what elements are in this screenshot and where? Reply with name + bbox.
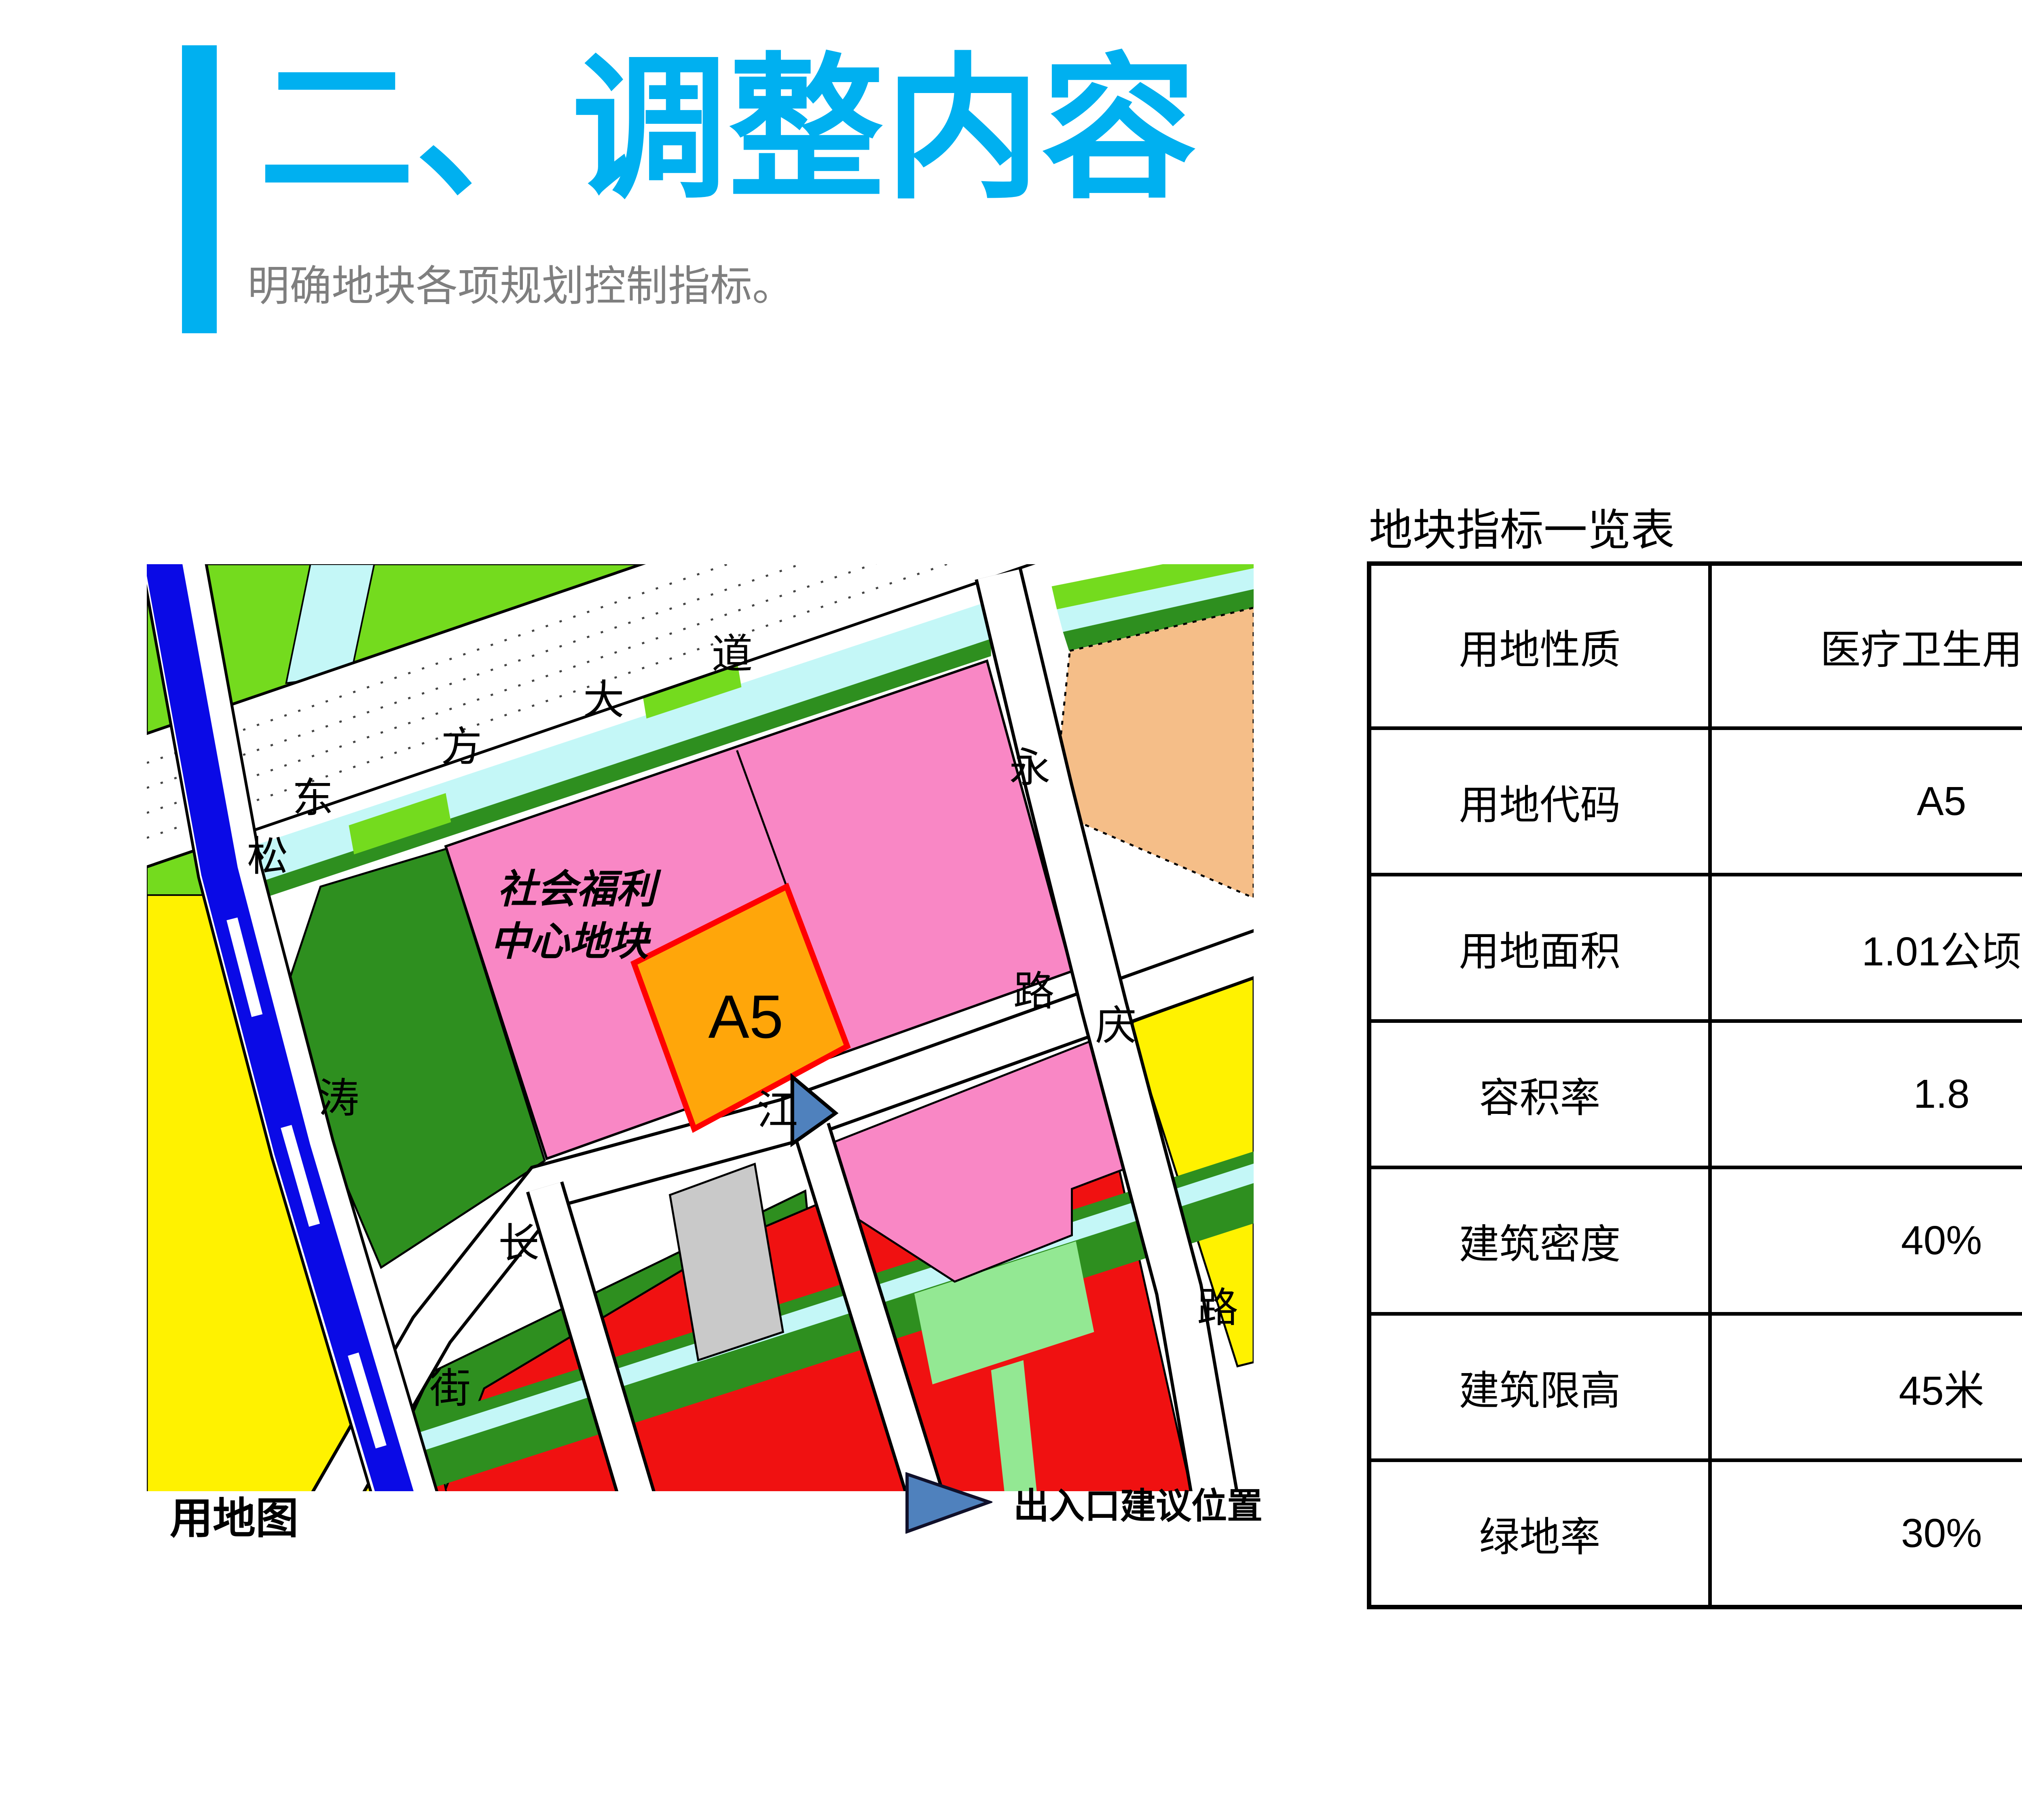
road-label-changjiang-3: 路	[1013, 968, 1055, 1014]
row-value: 30%	[1710, 1460, 2022, 1607]
welfare-parcel-label-line2: 中心地块	[490, 919, 651, 964]
row-label: 用地性质	[1369, 564, 1710, 728]
a5-parcel-label: A5	[708, 983, 783, 1051]
road-label-songtao-1: 松	[247, 833, 288, 879]
row-value: 1.8	[1710, 1021, 2022, 1168]
title-accent-bar	[182, 45, 217, 333]
row-value: 40%	[1710, 1168, 2022, 1314]
table-row: 绿地率 30%	[1369, 1460, 2022, 1607]
row-label: 绿地率	[1369, 1460, 1710, 1607]
row-value: A5	[1710, 728, 2022, 875]
road-label-songtao-3: 街	[429, 1365, 471, 1412]
road-label-changjiang-2: 江	[757, 1087, 798, 1133]
entrance-legend-icon	[905, 1472, 992, 1534]
table-row: 建筑限高 45米	[1369, 1314, 2022, 1460]
page-subtitle: 明确地块各项规划控制指标。	[247, 252, 794, 313]
table-row: 用地性质 医疗卫生用地	[1369, 564, 2022, 728]
table-row: 用地代码 A5	[1369, 728, 2022, 875]
road-label-dongfang-1: 东	[292, 775, 334, 821]
road-label-yongqing-3: 路	[1197, 1285, 1238, 1331]
welfare-parcel-label-line1: 社会福利	[497, 867, 662, 911]
road-label-yongqing-2: 庆	[1095, 1003, 1136, 1049]
page-title: 二、调整内容	[259, 48, 1198, 211]
road-label-dongfang-4: 道	[711, 631, 753, 677]
entrance-legend-label: 出入口建议位置	[1013, 1477, 1263, 1529]
slide: 二、调整内容 明确地块各项规划控制指标。	[0, 0, 2022, 1820]
map-caption: 用地图	[170, 1484, 298, 1546]
row-label: 容积率	[1369, 1021, 1710, 1168]
row-label: 用地代码	[1369, 728, 1710, 875]
land-use-map: A5 社会福利 中心地块 东 方 大 道 松 涛 街 长 江 路 永 庆 路	[147, 564, 1254, 1491]
row-value: 医疗卫生用地	[1710, 564, 2022, 728]
road-label-dongfang-3: 大	[583, 677, 624, 723]
row-label: 建筑限高	[1369, 1314, 1710, 1460]
table-row: 容积率 1.8	[1369, 1021, 2022, 1168]
row-value: 45米	[1710, 1314, 2022, 1460]
row-label: 建筑密度	[1369, 1168, 1710, 1314]
row-label: 用地面积	[1369, 875, 1710, 1021]
table-title: 地块指标一览表	[1369, 495, 1675, 558]
road-label-yongqing-1: 永	[1009, 745, 1051, 791]
row-value: 1.01公顷	[1710, 875, 2022, 1021]
road-label-songtao-2: 涛	[318, 1075, 360, 1121]
plot-indicator-table: 用地性质 医疗卫生用地 用地代码 A5 用地面积 1.01公顷 容积率 1.8 …	[1367, 561, 2022, 1609]
road-label-dongfang-2: 方	[441, 724, 482, 770]
land-use-map-svg: A5 社会福利 中心地块 东 方 大 道 松 涛 街 长 江 路 永 庆 路	[147, 564, 1254, 1491]
road-label-changjiang-1: 长	[498, 1220, 539, 1266]
table-row: 用地面积 1.01公顷	[1369, 875, 2022, 1021]
table-row: 建筑密度 40%	[1369, 1168, 2022, 1314]
